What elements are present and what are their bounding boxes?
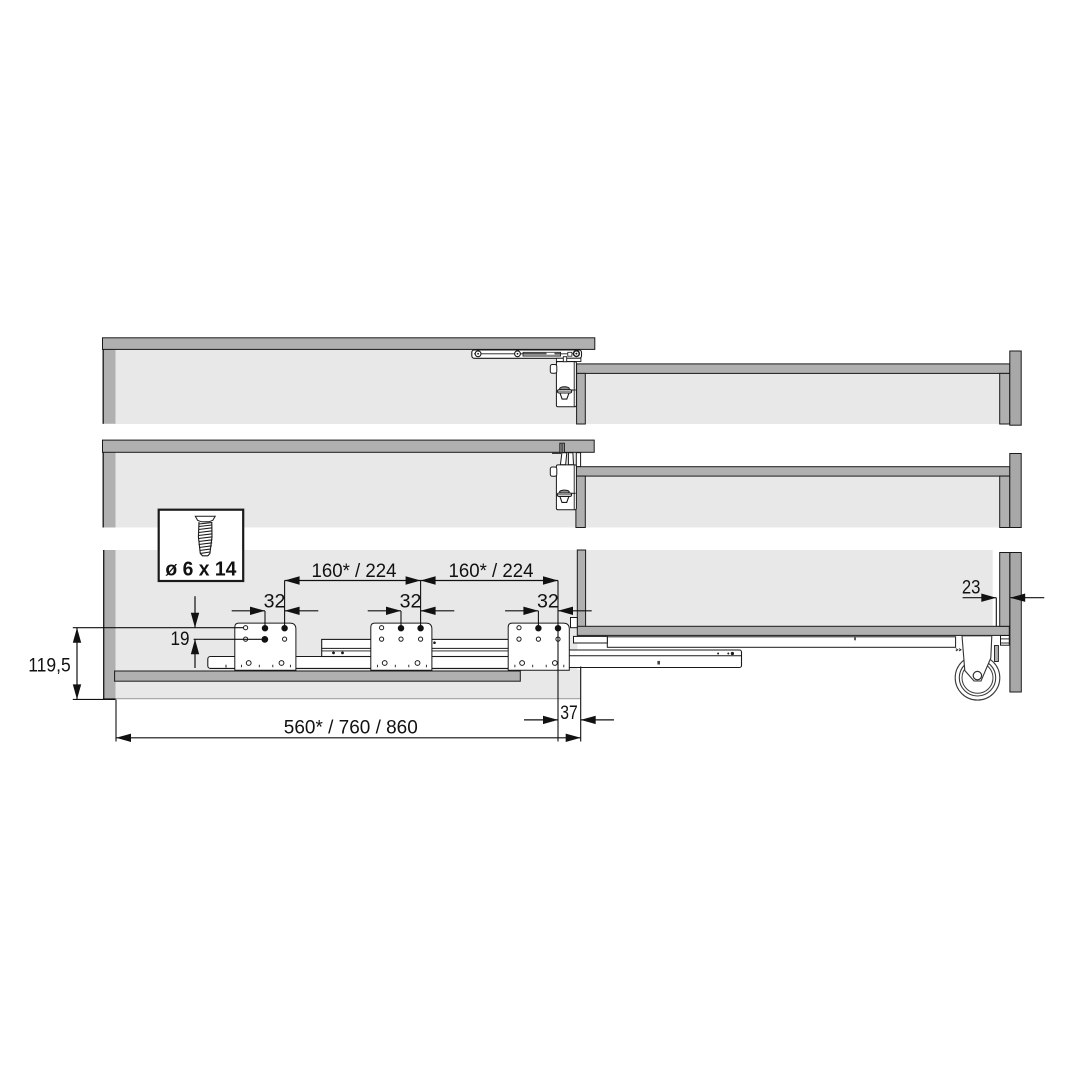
svg-text:160* / 224: 160* / 224	[312, 560, 397, 582]
svg-text:32: 32	[537, 591, 559, 613]
svg-text:ø 6 x 14: ø 6 x 14	[165, 558, 237, 580]
svg-text:32: 32	[264, 591, 286, 613]
svg-text:19: 19	[171, 628, 190, 650]
svg-text:160* / 224: 160* / 224	[449, 560, 534, 582]
svg-text:119,5: 119,5	[28, 654, 71, 676]
svg-text:32: 32	[400, 591, 422, 613]
svg-text:37: 37	[560, 702, 578, 724]
svg-text:560* / 760 / 860: 560* / 760 / 860	[284, 717, 418, 739]
svg-text:23: 23	[962, 576, 981, 598]
